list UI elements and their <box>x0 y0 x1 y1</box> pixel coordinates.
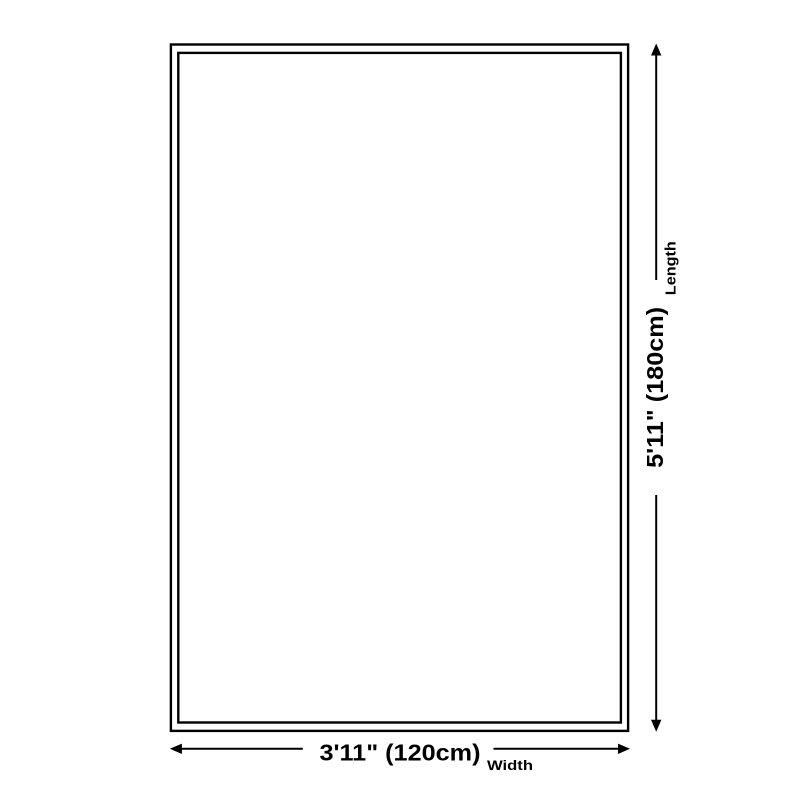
svg-text:Width: Width <box>487 757 533 773</box>
svg-text:5'11" (180cm): 5'11" (180cm) <box>642 307 668 468</box>
svg-text:Length: Length <box>663 241 680 295</box>
svg-text:3'11" (120cm): 3'11" (120cm) <box>320 740 481 766</box>
